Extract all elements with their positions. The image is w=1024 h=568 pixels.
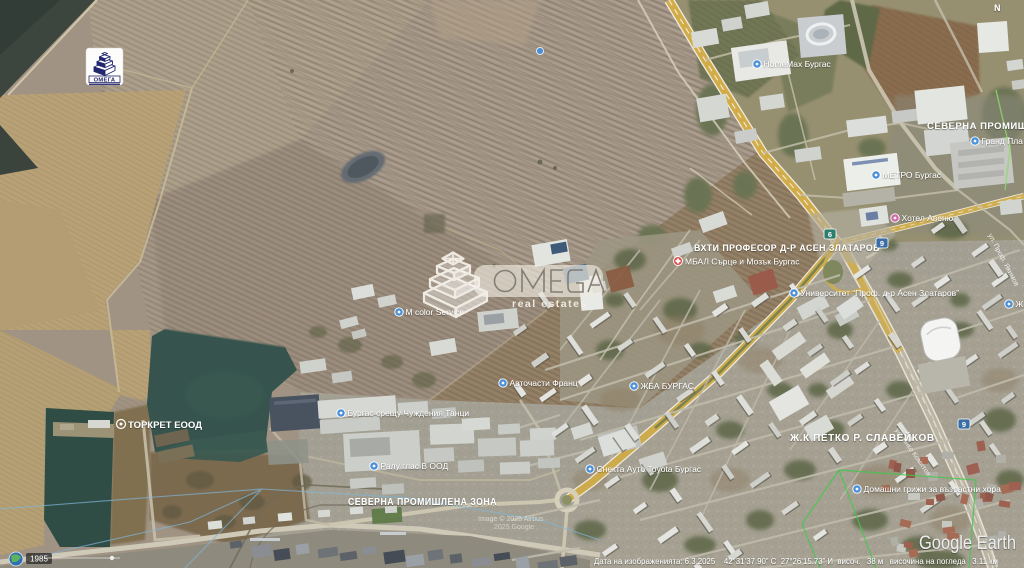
svg-text:МЕТРО Бургас: МЕТРО Бургас [883, 170, 942, 180]
svg-text:real estates: real estates [512, 298, 588, 310]
svg-text:6: 6 [828, 230, 832, 239]
svg-text:Авточасти Франц: Авточасти Франц [510, 378, 578, 388]
svg-text:Бургас срещу Чуждения Танци: Бургас срещу Чуждения Танци [348, 408, 470, 418]
svg-text:ЖБА БУРГАС: ЖБА БУРГАС [641, 381, 694, 391]
svg-text:9: 9 [962, 420, 966, 429]
svg-text:Гранд Пла: Гранд Пла [982, 136, 1024, 146]
svg-text:1985: 1985 [30, 555, 48, 564]
svg-text:Image © 2025 Airbus: Image © 2025 Airbus [478, 515, 544, 523]
svg-text:Ж.К ПЕТКО Р. СЛАВЕЙКОВ: Ж.К ПЕТКО Р. СЛАВЕЙКОВ [789, 431, 935, 444]
svg-text:Хотел Авеню: Хотел Авеню [902, 213, 954, 223]
svg-text:Ж: Ж [1016, 299, 1024, 309]
svg-text:Домашни грижи за възрастни хор: Домашни грижи за възрастни хора [864, 484, 1002, 494]
svg-text:9: 9 [880, 239, 884, 248]
svg-text:Google Earth: Google Earth [919, 533, 1016, 554]
svg-text:2025 Google: 2025 Google [494, 524, 534, 531]
svg-text:СЕВЕРНА ПРОМИШЛЕНА ЗОНА: СЕВЕРНА ПРОМИШЛЕНА ЗОНА [348, 496, 497, 508]
svg-text:HomeMax Бургас: HomeMax Бургас [764, 59, 832, 69]
svg-text:Снекта Ауто Toyota Бургас: Снекта Ауто Toyota Бургас [597, 464, 702, 474]
svg-text:МБАЛ Сърце и Мозък Бургас: МБАЛ Сърце и Мозък Бургас [685, 257, 800, 267]
svg-text:ВХТИ ПРОФЕСОР Д-Р АСЕН ЗЛАТАРО: ВХТИ ПРОФЕСОР Д-Р АСЕН ЗЛАТАРОВ [694, 243, 880, 254]
svg-text:Ралу глас В ООД: Ралу глас В ООД [381, 461, 449, 471]
svg-text:СЕВЕРНА ПРОМИШЛ: СЕВЕРНА ПРОМИШЛ [927, 121, 1024, 132]
svg-text:Дата на изображенията: 6.3.202: Дата на изображенията: 6.3.2025 42°31’37… [594, 556, 998, 566]
svg-text:ОМЕГА: ОМЕГА [94, 78, 116, 84]
svg-text:ТОРКРЕТ ЕООД: ТОРКРЕТ ЕООД [128, 420, 202, 431]
svg-text:N: N [994, 3, 1001, 13]
svg-text:Университет “Проф. д-р Асен Зл: Университет “Проф. д-р Асен Златаров” [801, 288, 960, 298]
